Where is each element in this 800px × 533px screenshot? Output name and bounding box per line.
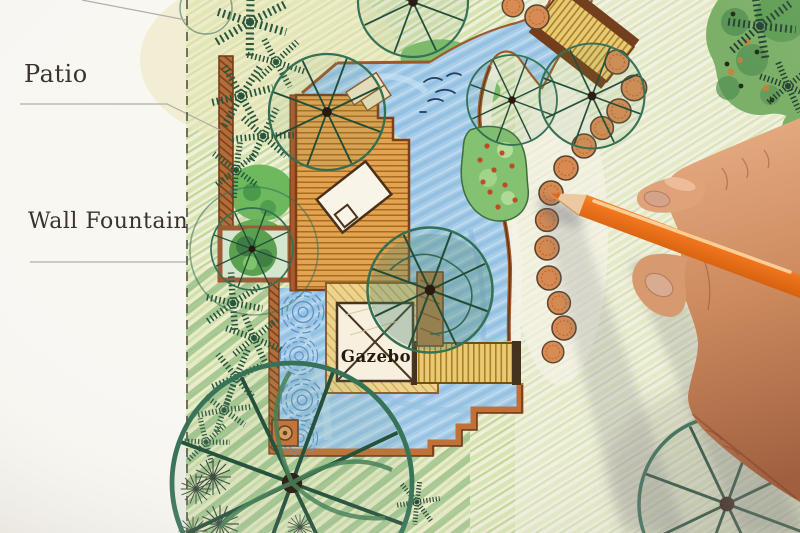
label-wall-fountain: Wall Fountain (28, 209, 188, 234)
landscape-plan-photo: Patio Wall Fountain Gazebo (0, 0, 800, 533)
label-patio: Patio (24, 60, 88, 88)
plan-drawing (0, 0, 800, 533)
label-gazebo: Gazebo (339, 347, 413, 366)
